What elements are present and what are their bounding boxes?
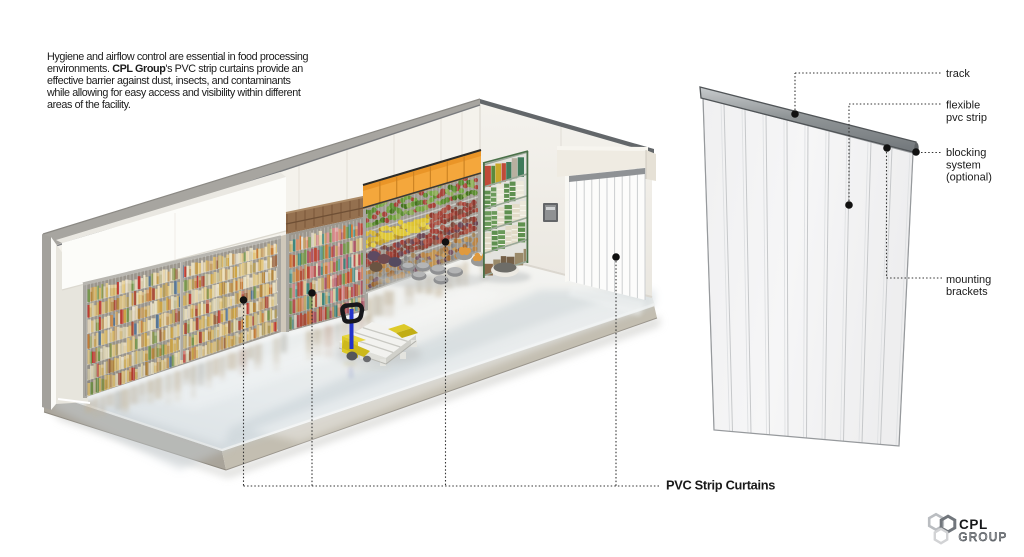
svg-text:mounting: mounting xyxy=(946,274,991,286)
svg-text:(optional): (optional) xyxy=(946,172,992,184)
svg-text:blocking: blocking xyxy=(946,147,986,159)
svg-text:CPL: CPL xyxy=(959,517,988,532)
svg-text:pvc strip: pvc strip xyxy=(946,112,987,124)
svg-text:system: system xyxy=(946,159,981,171)
svg-text:PVC Strip Curtains: PVC Strip Curtains xyxy=(666,478,775,493)
svg-text:track: track xyxy=(946,68,970,80)
svg-text:GROUP: GROUP xyxy=(959,532,1008,544)
svg-text:brackets: brackets xyxy=(946,286,988,298)
svg-text:flexible: flexible xyxy=(946,100,980,112)
